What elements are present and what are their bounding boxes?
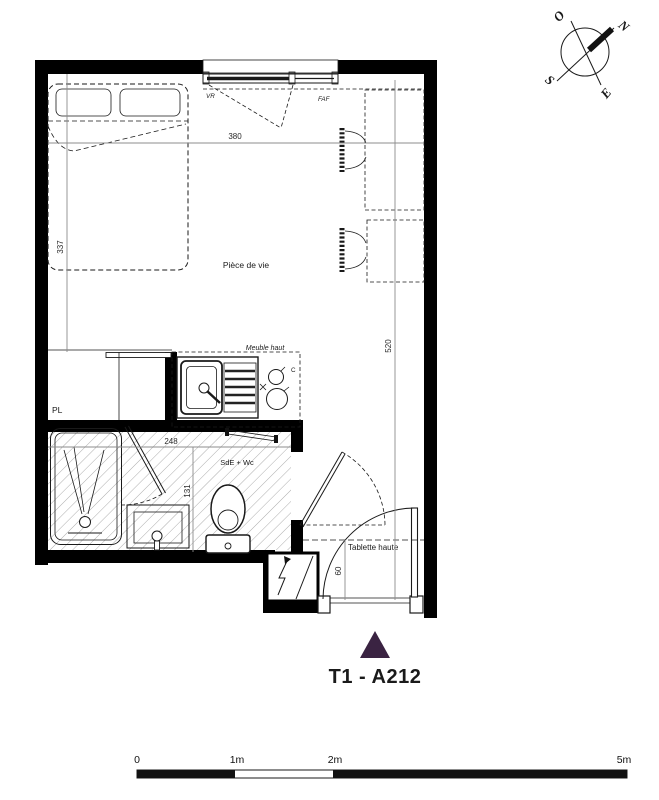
- scale-bar: 0 1m 2m 5m: [134, 754, 631, 778]
- closet-label: PL: [52, 405, 63, 415]
- cooktop-icon: [267, 367, 290, 410]
- heater-icon: [342, 128, 366, 172]
- window-swing: [209, 85, 293, 128]
- dim-living-width: 380: [228, 132, 242, 141]
- compass-rose: N O S E: [542, 7, 632, 102]
- scale-tick-1m: 1m: [230, 754, 245, 766]
- closet-pl: [48, 350, 172, 420]
- pillow: [120, 89, 180, 116]
- door-leaf: [412, 508, 418, 597]
- unit-marker-triangle: [360, 631, 390, 658]
- kitchenette: C: [172, 352, 300, 427]
- sliding-door: [106, 353, 171, 358]
- bathroom-door: [300, 452, 385, 527]
- kitchen-upper-label: Meuble haut: [246, 345, 286, 352]
- dim-bath-depth: 131: [183, 484, 192, 498]
- scale-tick-2m: 2m: [328, 754, 343, 766]
- dim-bath-width: 248: [164, 437, 178, 446]
- technical-closet: [267, 553, 318, 601]
- living-room-label: Pièce de vie: [223, 260, 270, 270]
- floorplan-svg: VR FAF: [0, 0, 659, 800]
- high-shelf-label: Tablette haute: [348, 543, 399, 552]
- bed-fold-line: [48, 124, 186, 151]
- dim-living-depth: 520: [384, 339, 393, 353]
- bathroom-floor-hatch: [48, 432, 291, 550]
- compass-east: E: [597, 85, 615, 102]
- compass-west: O: [550, 7, 568, 24]
- door-swing: [323, 508, 414, 599]
- window-type-label: FAF: [318, 96, 331, 103]
- pillow: [56, 89, 111, 116]
- window-shutter-label: VR: [206, 93, 215, 100]
- unit-title: T1 - A212: [329, 666, 422, 688]
- bathroom-label: SdE + Wc: [220, 458, 254, 467]
- heater-icon: [342, 228, 366, 272]
- scale-tick-5m: 5m: [617, 754, 632, 766]
- x-mark: [260, 384, 266, 390]
- bed: [48, 84, 188, 270]
- floorplan-page: VR FAF: [0, 0, 659, 800]
- compass-north: N: [615, 16, 633, 35]
- compass-south: S: [542, 72, 557, 88]
- sink-icon: [181, 361, 222, 414]
- entry-door: [318, 508, 423, 613]
- right-wall-units: [342, 90, 424, 282]
- dim-entry: 60: [334, 566, 343, 575]
- unit-title-block: T1 - A212: [329, 631, 422, 688]
- cooktop-mark: C: [291, 367, 296, 374]
- scale-tick-0: 0: [134, 754, 140, 766]
- dim-bed-wall: 337: [56, 240, 65, 254]
